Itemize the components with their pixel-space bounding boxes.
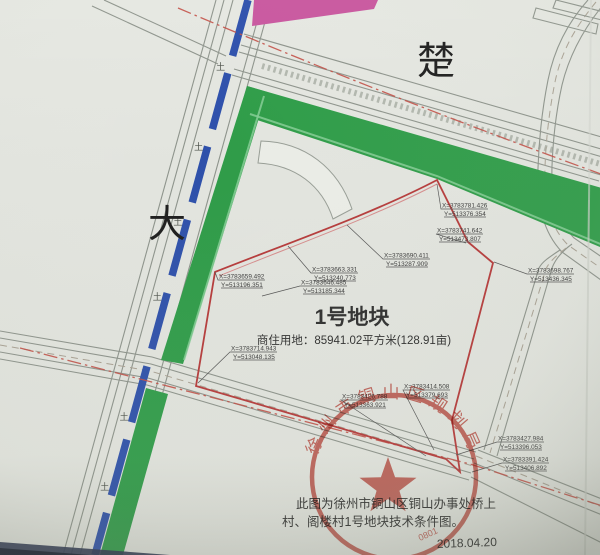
map-canvas: 土土土土土土 X=3783781.426Y=513376.354X=378374… [0, 0, 600, 555]
photo-artifacts [0, 0, 600, 555]
parcel-map-photo: 土土土土土土 X=3783781.426Y=513376.354X=378374… [0, 0, 600, 555]
